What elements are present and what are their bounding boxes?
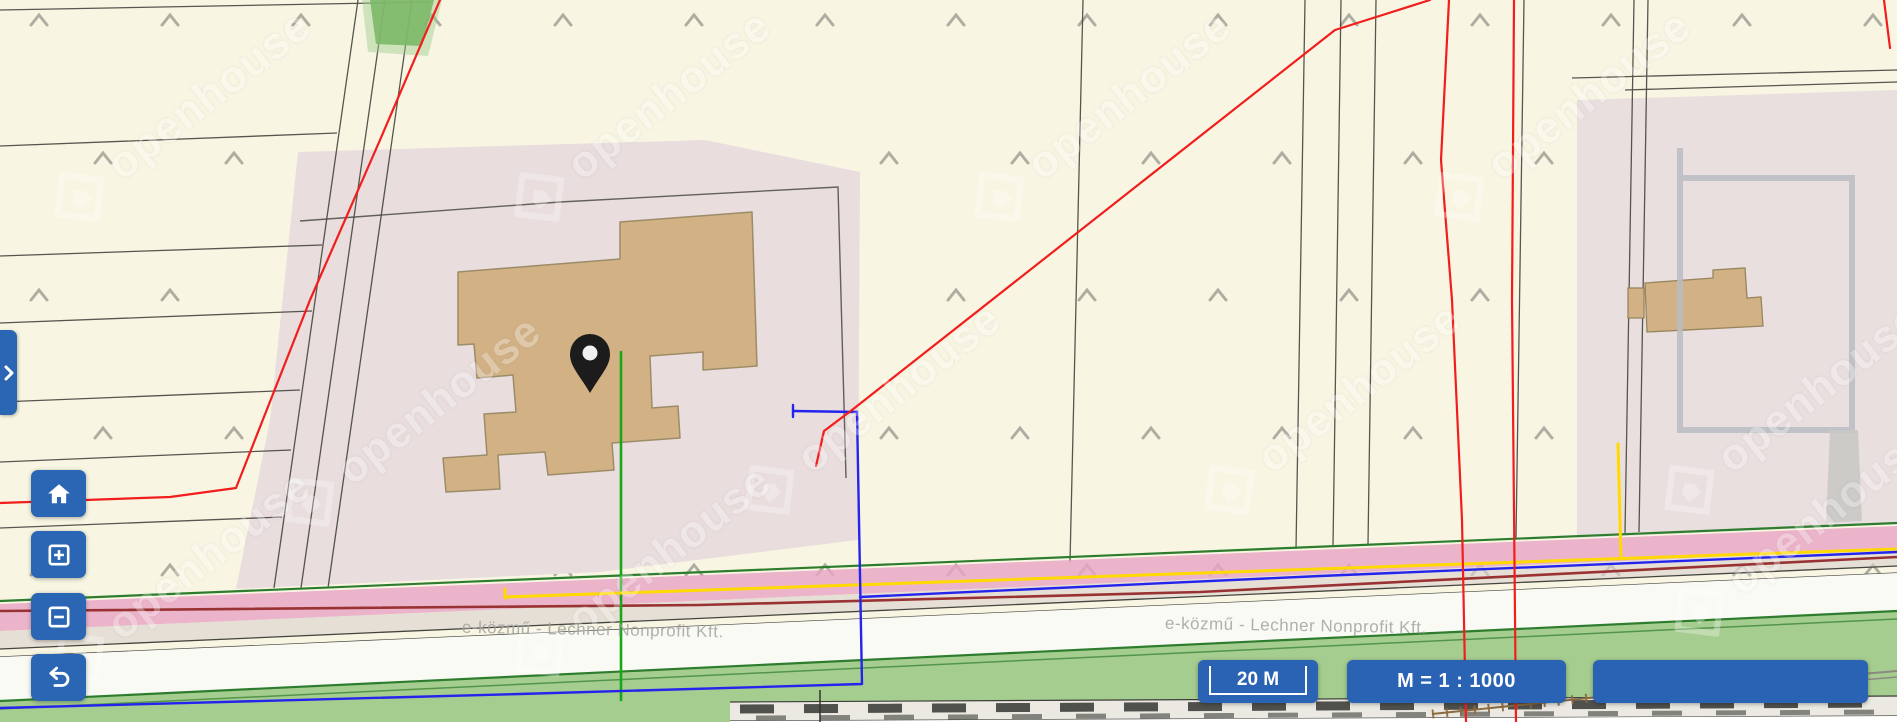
map-canvas[interactable] — [0, 0, 1897, 722]
scale-bar: 20 M — [1198, 660, 1318, 703]
zoom-in-icon — [46, 542, 72, 568]
zoom-out-button[interactable] — [31, 593, 86, 640]
vegetation-patch — [362, 0, 442, 56]
scale-ratio-badge: M = 1 : 1000 — [1347, 660, 1566, 703]
home-button[interactable] — [31, 470, 86, 517]
back-button[interactable] — [31, 654, 86, 701]
scale-bar-label: 20 M — [1237, 669, 1279, 691]
driveway — [1826, 430, 1862, 523]
undo-arrow-icon — [45, 664, 73, 692]
scale-ratio-label: M = 1 : 1000 — [1397, 670, 1516, 693]
expand-panel-tab[interactable] — [0, 330, 17, 415]
zoom-out-icon — [46, 604, 72, 630]
zoom-in-button[interactable] — [31, 531, 86, 578]
chevron-right-icon — [3, 364, 15, 382]
map-viewer: openhouse openhouse openhouse openhouse … — [0, 0, 1897, 722]
info-box — [1593, 660, 1868, 703]
home-icon — [46, 481, 72, 507]
